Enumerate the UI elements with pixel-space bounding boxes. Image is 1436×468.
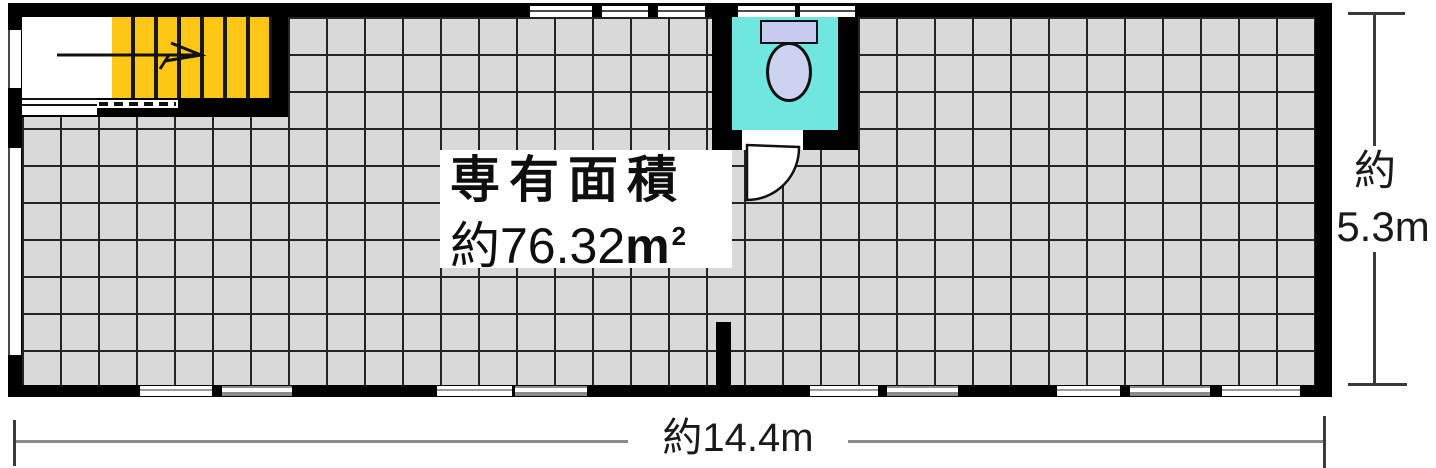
window-icon xyxy=(810,386,878,396)
floorplan-image: 専有面積 約76.32m2 約14.4m 約 5.3m xyxy=(0,0,1436,468)
floorplan-outline: 専有面積 約76.32m2 xyxy=(8,3,1332,397)
stair-railing xyxy=(22,98,97,115)
area-label-title: 専有面積 xyxy=(450,152,732,208)
dimension-cap-bottom xyxy=(1348,383,1407,386)
window-icon xyxy=(140,386,212,396)
width-dimension-label: 約14.4m xyxy=(628,414,848,462)
area-value-text: 約76.32 xyxy=(450,218,625,274)
dimension-tick-right xyxy=(1323,416,1326,468)
window-icon xyxy=(1057,386,1120,396)
window-icon xyxy=(800,6,855,17)
up-arrow-icon xyxy=(53,39,213,73)
window-icon xyxy=(887,386,958,396)
staircase-room xyxy=(8,3,288,117)
window-icon xyxy=(1130,386,1210,396)
height-dimension: 約 5.3m xyxy=(1336,0,1436,410)
wall-stub xyxy=(716,322,731,397)
dimension-line-upper xyxy=(1373,14,1376,146)
window-icon xyxy=(437,386,512,396)
area-label: 専有面積 約76.32m2 xyxy=(440,150,732,268)
wall-segment xyxy=(8,88,22,150)
window-icon xyxy=(8,148,21,355)
toilet-icon xyxy=(760,20,818,44)
area-unit: m xyxy=(625,218,669,274)
dimension-line-lower xyxy=(1373,252,1376,383)
area-label-value: 約76.32m2 xyxy=(450,208,732,274)
dimension-cap-top xyxy=(1348,12,1405,15)
dimension-tick-left xyxy=(13,420,16,466)
window-icon xyxy=(8,30,21,88)
height-dimension-label-value: 5.3m xyxy=(1327,202,1436,252)
door-swing-icon xyxy=(740,142,808,206)
window-icon xyxy=(515,386,587,396)
height-dimension-label-prefix: 約 xyxy=(1336,146,1414,196)
toilet-bowl-icon xyxy=(766,42,812,102)
window-icon xyxy=(530,6,592,17)
window-icon xyxy=(1222,386,1300,396)
window-icon xyxy=(738,6,795,17)
stair-opening-dashed-line xyxy=(97,100,178,108)
toilet-room xyxy=(712,3,858,150)
dimension-line-right xyxy=(848,440,1325,443)
window-icon xyxy=(602,6,648,17)
dashed-line xyxy=(99,102,176,106)
dimension-line-left xyxy=(16,440,628,443)
window-icon xyxy=(222,386,292,396)
width-dimension: 約14.4m xyxy=(0,410,1436,468)
window-icon xyxy=(658,6,705,17)
area-unit-superscript: 2 xyxy=(672,221,686,251)
